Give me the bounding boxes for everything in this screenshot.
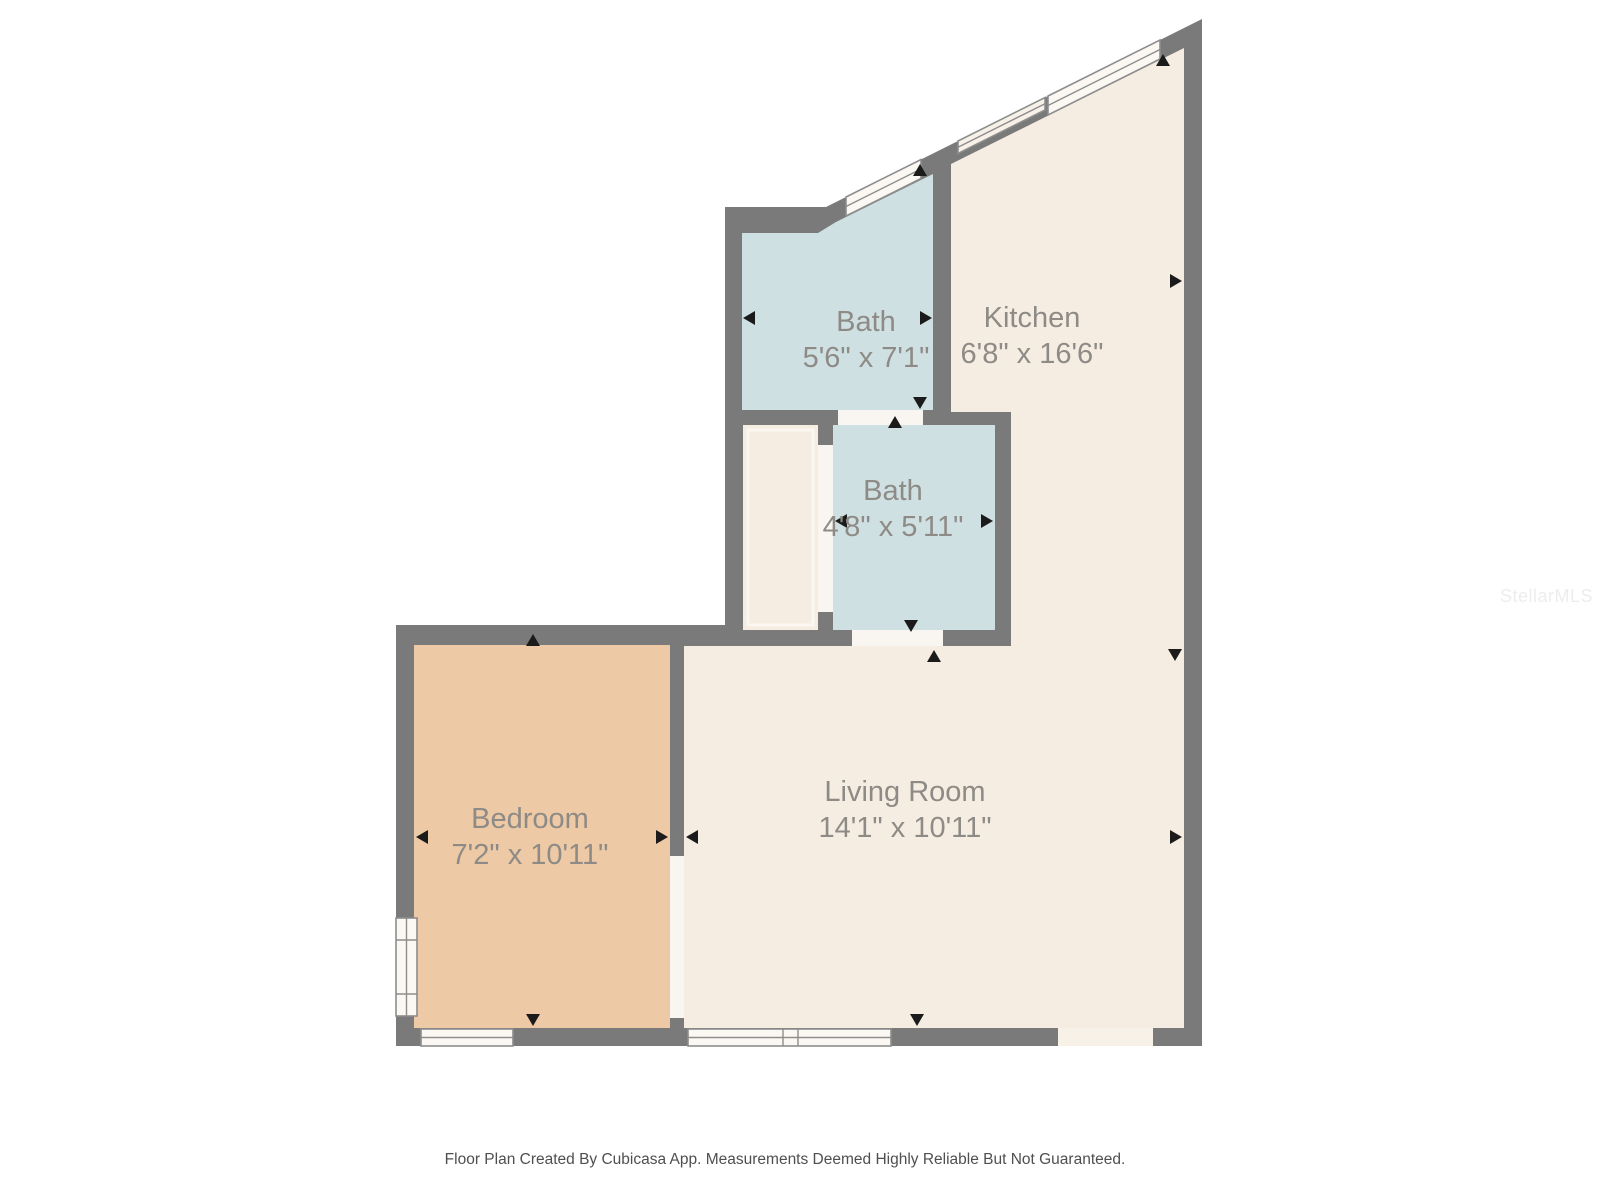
floor-plan-page: Bath 5'6" x 7'1" Kitchen 6'8" x 16'6" Ba…: [0, 0, 1600, 1200]
footer-disclaimer: Floor Plan Created By Cubicasa App. Meas…: [445, 1151, 1126, 1168]
bath-1-label: Bath: [836, 306, 896, 338]
bath-2-living-door-opening: [852, 630, 943, 646]
bedroom-left-window: [396, 918, 417, 1016]
stellar-mls-watermark: StellarMLS: [1500, 586, 1593, 606]
kitchen-dimensions: 6'8" x 16'6": [961, 338, 1104, 370]
kitchen-label: Kitchen: [984, 302, 1081, 334]
kitchen-bottom-opening: [1058, 1028, 1153, 1046]
floor-plan-canvas: Bath 5'6" x 7'1" Kitchen 6'8" x 16'6" Ba…: [0, 0, 1600, 1200]
bedroom-bottom-window: [421, 1029, 513, 1046]
bedroom-living-door-opening: [670, 856, 684, 1018]
bath-1-bath-2-opening: [838, 410, 923, 425]
room-bedroom-floor: [414, 645, 670, 1028]
bedroom-dimensions: 7'2" x 10'11": [452, 839, 609, 871]
bath-2-dimensions: 4'8" x 5'11": [823, 511, 964, 543]
room-hallway-floor: [743, 425, 818, 630]
living-room-bottom-window: [688, 1029, 891, 1046]
bedroom-label: Bedroom: [471, 803, 589, 835]
living-room-label: Living Room: [824, 776, 985, 808]
bath-2-label: Bath: [863, 475, 923, 507]
living-room-dimensions: 14'1" x 10'11": [818, 812, 991, 844]
bath-1-dimensions: 5'6" x 7'1": [803, 342, 930, 374]
